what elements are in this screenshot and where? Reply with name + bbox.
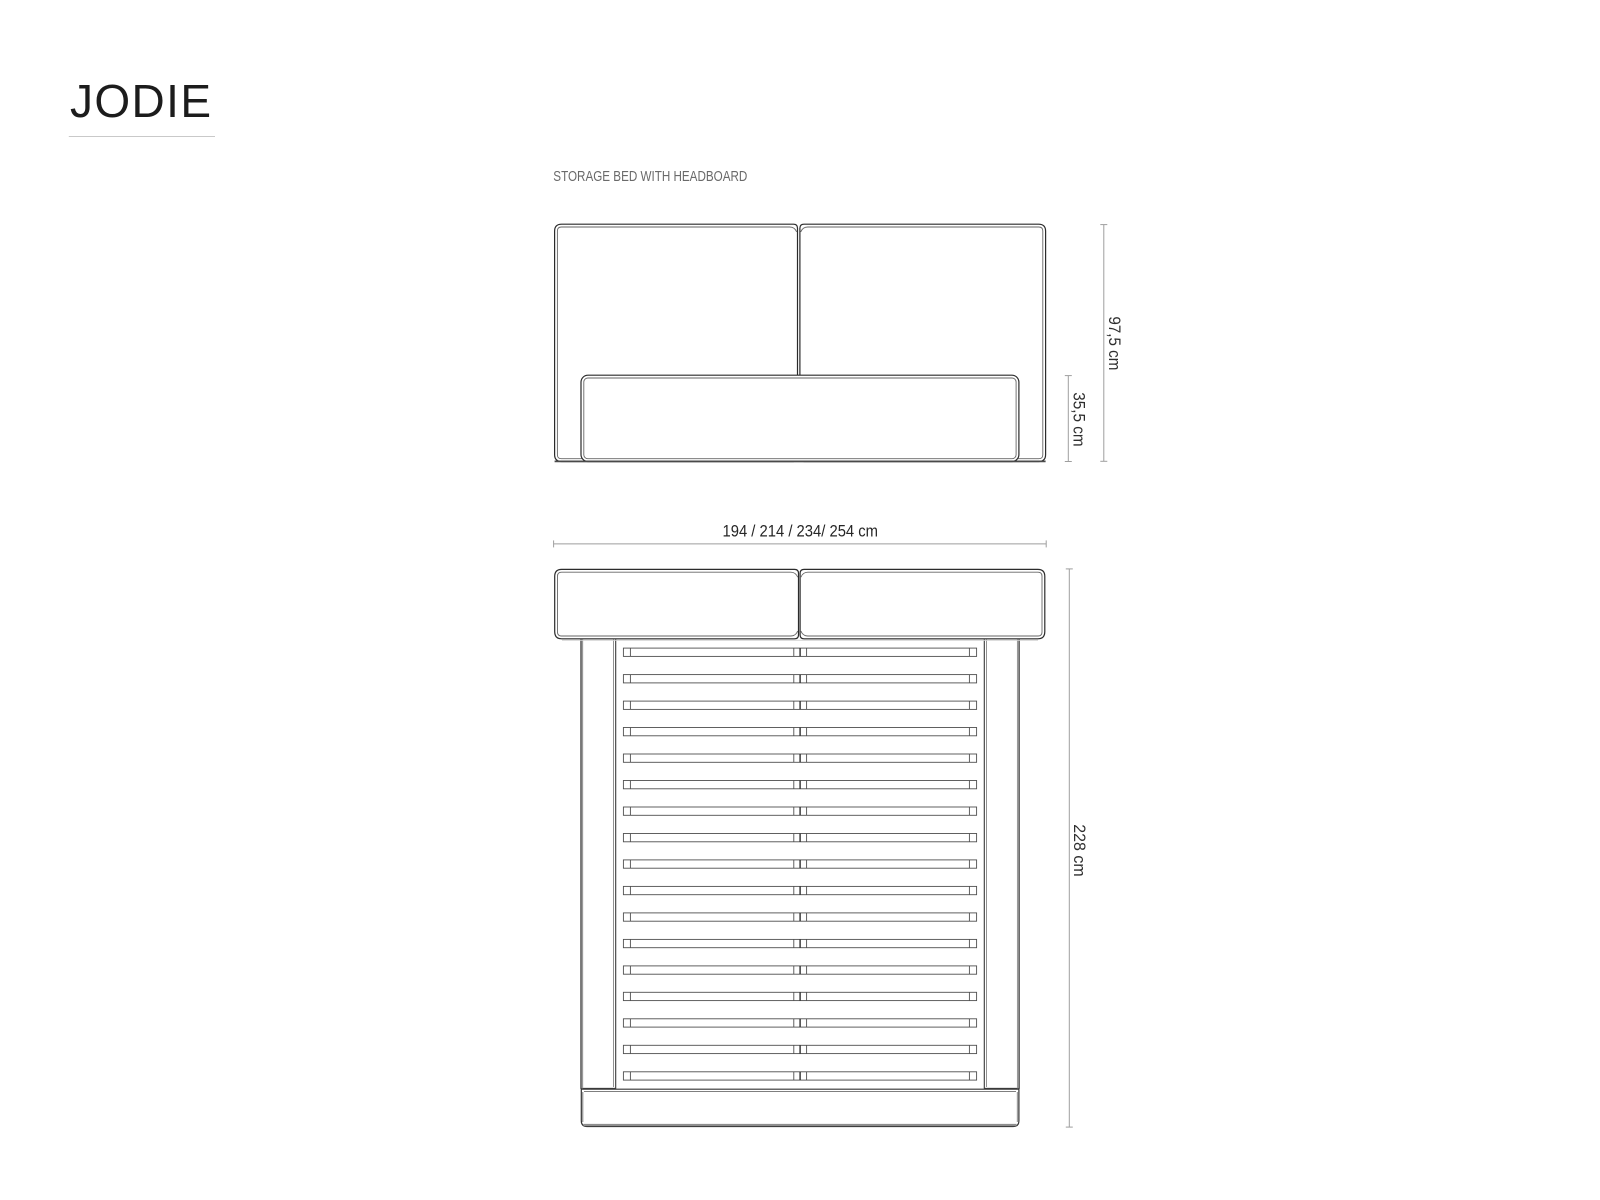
svg-text:35,5 cm: 35,5 cm — [1070, 392, 1089, 447]
svg-text:JODIE: JODIE — [70, 75, 211, 127]
svg-text:97,5 cm: 97,5 cm — [1105, 316, 1124, 370]
svg-text:194 / 214 / 234/ 254 cm: 194 / 214 / 234/ 254 cm — [723, 522, 879, 540]
svg-text:228 cm: 228 cm — [1070, 824, 1089, 877]
svg-text:STORAGE BED WITH HEADBOARD: STORAGE BED WITH HEADBOARD — [553, 169, 747, 185]
